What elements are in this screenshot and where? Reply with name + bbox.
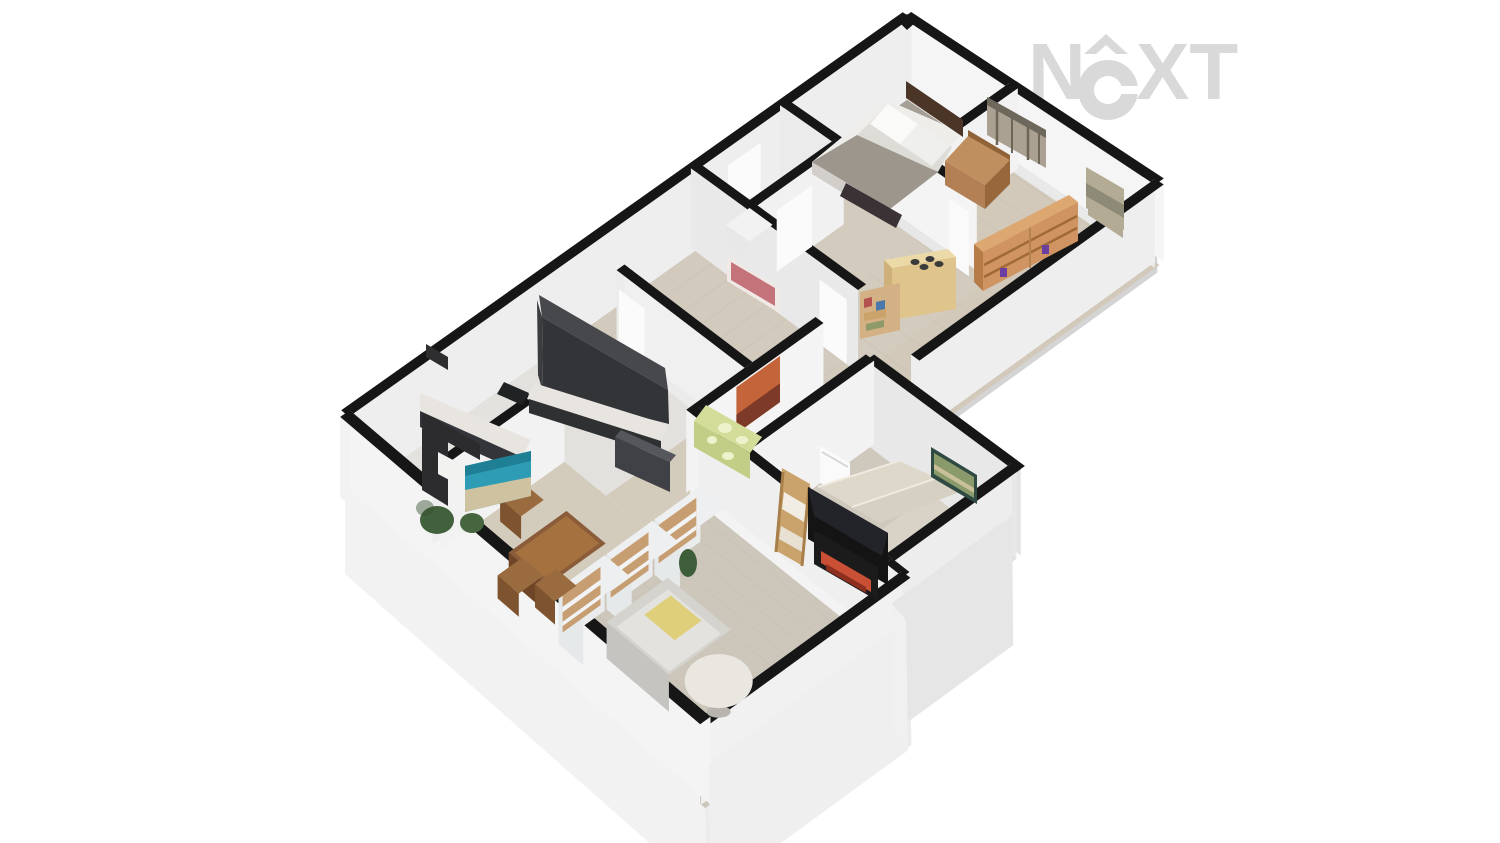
svg-text:XT: XT [1136, 27, 1238, 116]
